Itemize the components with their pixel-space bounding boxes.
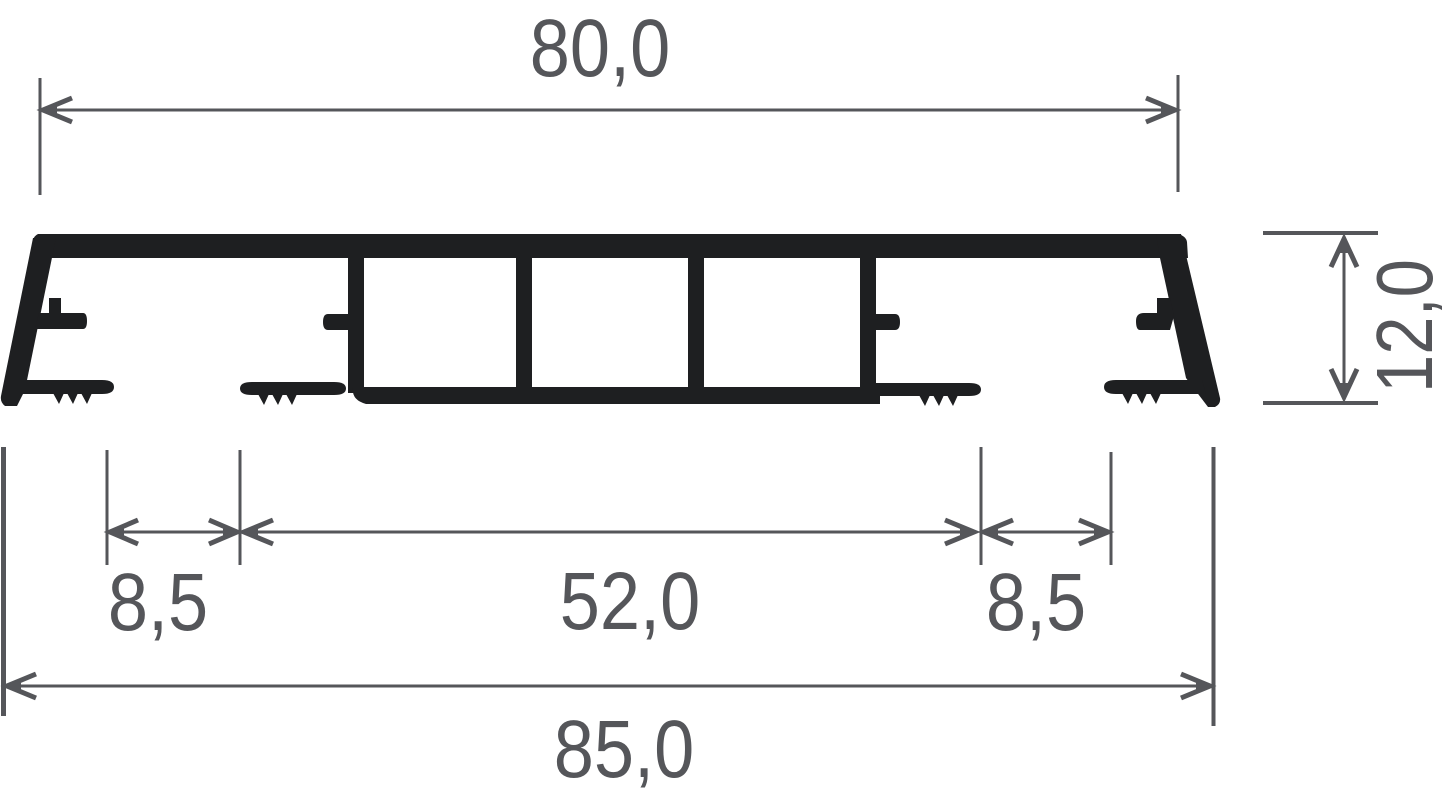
svg-text:80,0: 80,0 <box>530 3 670 94</box>
svg-text:8,5: 8,5 <box>986 557 1086 648</box>
svg-text:8,5: 8,5 <box>108 557 208 648</box>
svg-text:85,0: 85,0 <box>554 704 694 795</box>
svg-text:12,0: 12,0 <box>1359 259 1442 393</box>
svg-text:52,0: 52,0 <box>560 556 700 647</box>
